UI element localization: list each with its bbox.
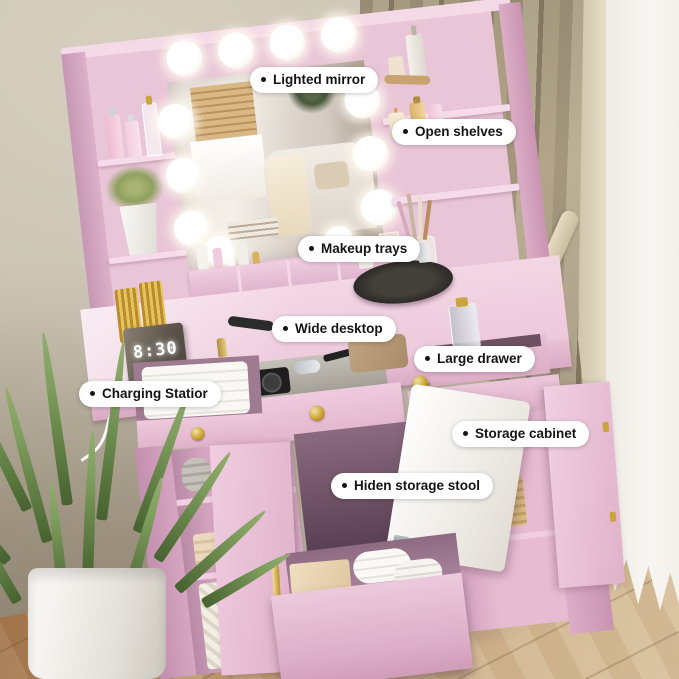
- makeup-brush: [418, 197, 422, 241]
- plant-pot: [28, 568, 166, 679]
- label-text: Wide desktop: [295, 321, 383, 336]
- bullet-dot: [309, 246, 314, 251]
- gold-hinge: [602, 422, 609, 432]
- reflected-pillow: [313, 161, 350, 191]
- plant-leaf: [38, 331, 73, 506]
- label-makeup-trays: Makeup trays: [298, 236, 420, 262]
- reflected-blinds: [190, 81, 258, 144]
- gold-hinge: [610, 512, 617, 522]
- label-text: Storage cabinet: [475, 426, 576, 441]
- perfume-in-drawer: [448, 303, 481, 350]
- label-open-shelves: Open shelves: [392, 119, 516, 145]
- label-text: Hiden storage stool: [354, 478, 480, 493]
- label-charging-station: Charging Statior: [79, 381, 221, 407]
- label-text: Large drawer: [437, 351, 522, 366]
- label-large-drawer: Large drawer: [414, 346, 535, 372]
- label-text: Lighted mirror: [273, 72, 365, 87]
- bullet-dot: [90, 391, 95, 396]
- label-storage-cabinet: Storage cabinet: [452, 421, 589, 447]
- bullet-dot: [463, 431, 468, 436]
- bullet-dot: [283, 326, 288, 331]
- bullet-dot: [403, 129, 408, 134]
- label-wide-desktop: Wide desktop: [272, 316, 396, 342]
- label-lighted-mirror: Lighted mirror: [250, 67, 378, 93]
- bullet-dot: [261, 77, 266, 82]
- label-text: Open shelves: [415, 124, 503, 139]
- label-hidden-storage-stool: Hiden storage stool: [331, 473, 493, 499]
- plant-leaf: [82, 430, 98, 580]
- label-text: Makeup trays: [321, 241, 407, 256]
- plant-leaf: [96, 341, 129, 521]
- bullet-dot: [342, 483, 347, 488]
- product-photo-scene: 8:30: [0, 0, 679, 679]
- wooden-brush: [384, 75, 430, 85]
- label-text: Charging Statior: [102, 386, 208, 401]
- bullet-dot: [425, 356, 430, 361]
- reflected-window: [190, 134, 269, 204]
